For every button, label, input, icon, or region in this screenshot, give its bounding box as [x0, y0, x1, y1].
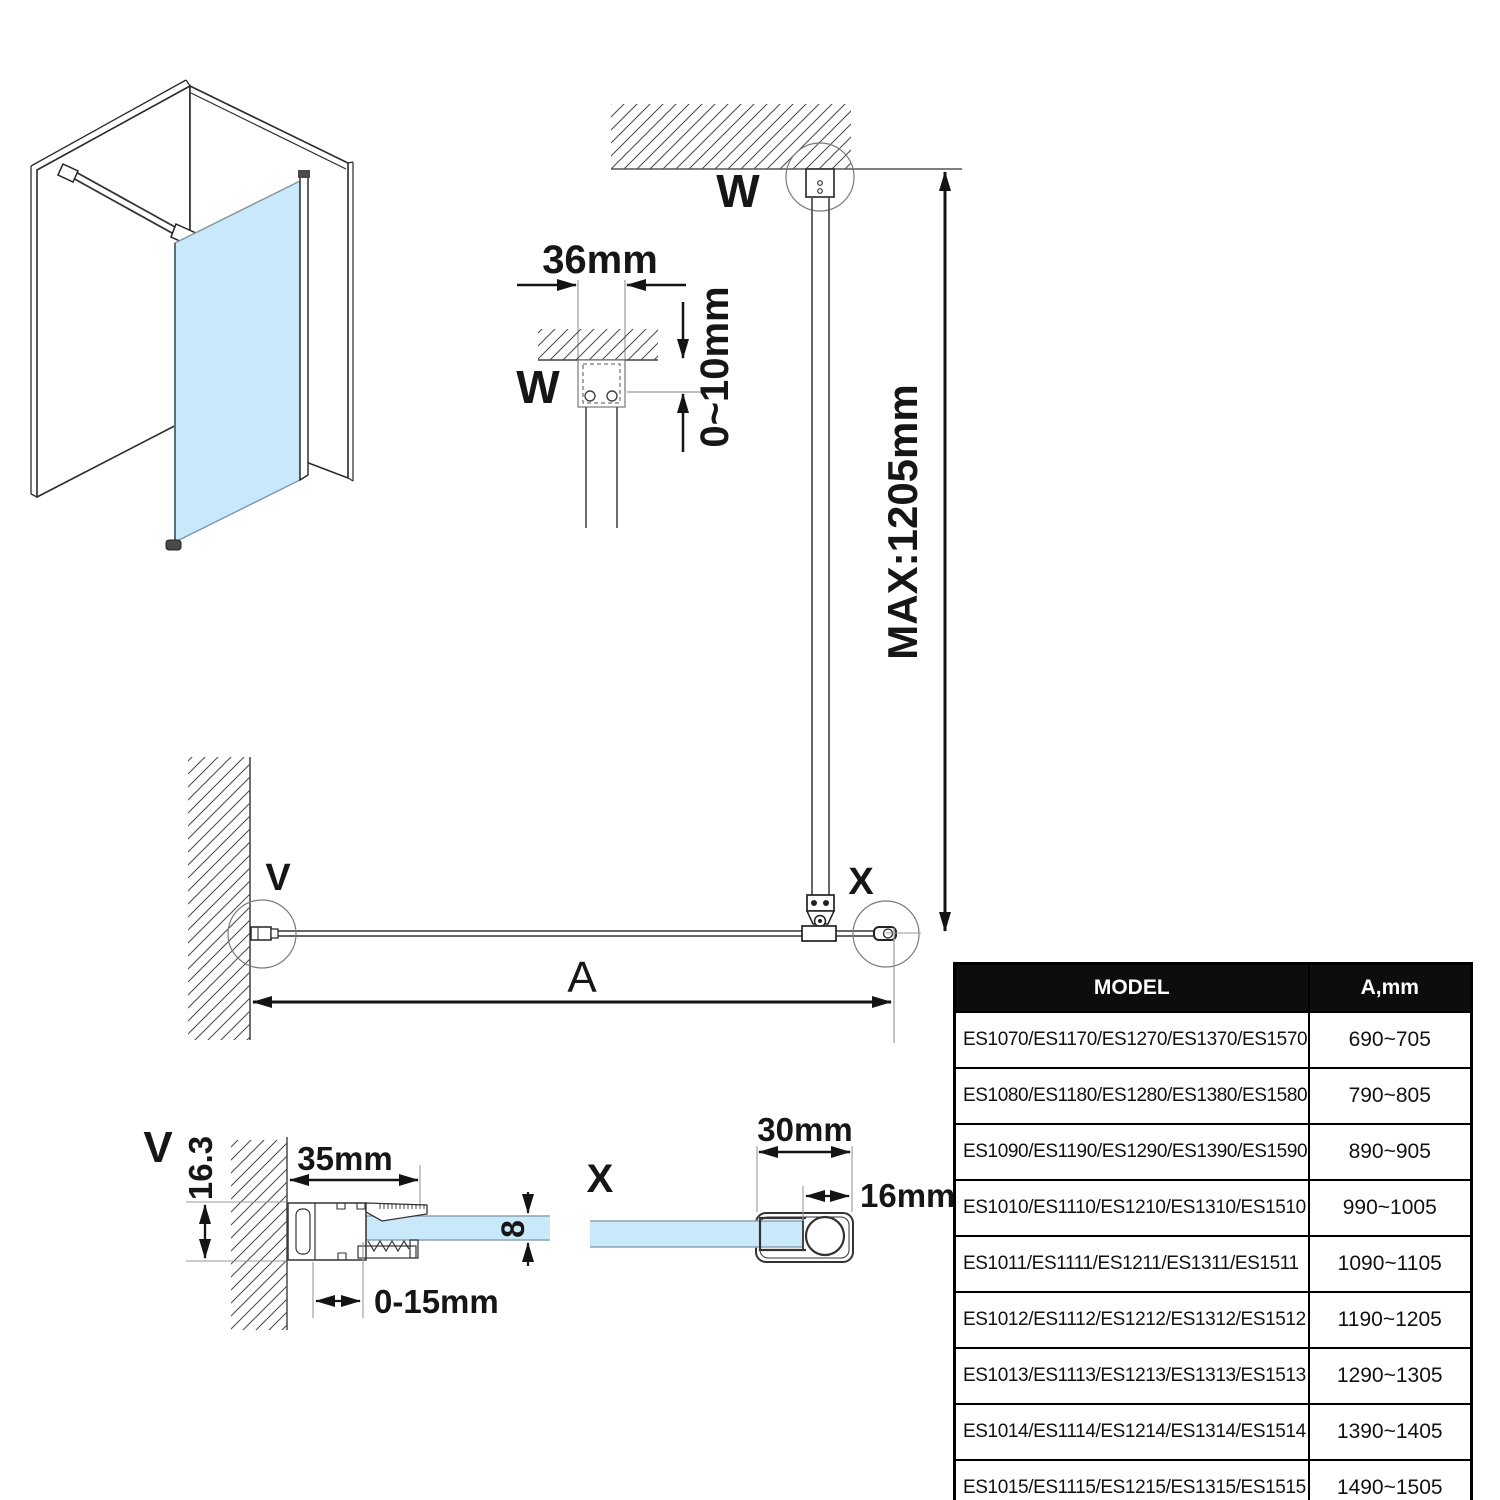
a-column-header: A,mm — [1309, 964, 1472, 1013]
bracket-screw — [607, 391, 617, 401]
technical-drawing-page: 36mm W 0~10mm W MAX:1205mm — [0, 0, 1500, 1500]
pole-glass-clamp — [807, 895, 834, 927]
table-row: ES1090/ES1190/ES1290/ES1390/ES1590890~90… — [955, 1124, 1472, 1180]
model-cell: ES1014/ES1114/ES1214/ES1314/ES1514 — [955, 1404, 1309, 1460]
table-row: ES1070/ES1170/ES1270/ES1370/ES1570690~70… — [955, 1012, 1472, 1068]
model-cell: ES1080/ES1180/ES1280/ES1380/ES1580 — [955, 1068, 1309, 1124]
profile-top-cap — [298, 170, 310, 178]
profile-tube-hole — [806, 1217, 844, 1255]
x-marker-label: X — [848, 861, 874, 903]
a-value-cell: 1090~1105 — [1309, 1236, 1472, 1292]
ceiling-bracket — [578, 360, 625, 407]
model-cell: ES1013/ES1113/ES1213/ES1313/ES1513 — [955, 1348, 1309, 1404]
wall-hatch-detail — [231, 1140, 287, 1330]
dim-16mm: 16mm — [860, 1177, 955, 1214]
model-cell: ES1010/ES1110/ES1210/ES1310/ES1510 — [955, 1180, 1309, 1236]
dim-8: 8 — [495, 1220, 531, 1238]
v-marker-label: V — [265, 857, 291, 899]
model-cell: ES1011/ES1111/ES1211/ES1311/ES1511 — [955, 1236, 1309, 1292]
dim-a-label: A — [567, 953, 597, 1002]
ceiling-hatch-detail — [538, 329, 658, 360]
detail-v: V 16.3 35mm — [143, 1123, 550, 1330]
model-cell: ES1070/ES1170/ES1270/ES1370/ES1570 — [955, 1012, 1309, 1068]
a-value-cell: 1390~1405 — [1309, 1404, 1472, 1460]
a-value-cell: 690~705 — [1309, 1012, 1472, 1068]
a-value-cell: 790~805 — [1309, 1068, 1472, 1124]
model-cell: ES1012/ES1112/ES1212/ES1312/ES1512 — [955, 1292, 1309, 1348]
model-table-body: ES1070/ES1170/ES1270/ES1370/ES1570690~70… — [955, 1012, 1472, 1500]
table-row: ES1080/ES1180/ES1280/ES1380/ES1580790~80… — [955, 1068, 1472, 1124]
glass-bottom-foot — [166, 540, 181, 550]
wall-hatch — [188, 757, 250, 1040]
isometric-view — [31, 80, 353, 550]
dim-max-1205mm: MAX:1205mm — [879, 384, 926, 659]
detail-w: 36mm W 0~10mm — [516, 238, 737, 528]
model-cell: ES1090/ES1190/ES1290/ES1390/ES1590 — [955, 1124, 1309, 1180]
table-row: ES1013/ES1113/ES1213/ES1313/ES15131290~1… — [955, 1348, 1472, 1404]
detail-x: X 30mm 16mm — [587, 1111, 956, 1262]
table-row: ES1015/ES1115/ES1215/ES1315/ES15151490~1… — [955, 1460, 1472, 1500]
a-value-cell: 890~905 — [1309, 1124, 1472, 1180]
clamp-block — [802, 926, 836, 941]
elevation-view: W MAX:1205mm — [611, 104, 962, 931]
left-wall — [37, 86, 190, 497]
wall-profile-iso — [300, 173, 308, 480]
glass-panel — [175, 181, 300, 542]
a-value-cell: 1290~1305 — [1309, 1348, 1472, 1404]
ceiling-hatch — [611, 104, 851, 169]
dim-30mm: 30mm — [757, 1111, 852, 1148]
dim-36mm: 36mm — [542, 238, 658, 282]
table-row: ES1011/ES1111/ES1211/ES1311/ES15111090~1… — [955, 1236, 1472, 1292]
a-value-cell: 990~1005 — [1309, 1180, 1472, 1236]
model-size-table: MODEL A,mm ES1070/ES1170/ES1270/ES1370/E… — [953, 962, 1473, 1500]
a-value-cell: 1490~1505 — [1309, 1460, 1472, 1500]
model-column-header: MODEL — [955, 964, 1309, 1013]
dim-0-10mm: 0~10mm — [693, 286, 737, 447]
dim-35mm: 35mm — [297, 1140, 392, 1177]
table-row: ES1012/ES1112/ES1212/ES1312/ES15121190~1… — [955, 1292, 1472, 1348]
wall-profile-plan — [251, 927, 271, 940]
w-marker-label: W — [716, 165, 760, 217]
a-value-cell: 1190~1205 — [1309, 1292, 1472, 1348]
detail-w-label: W — [516, 361, 560, 413]
model-cell: ES1015/ES1115/ES1215/ES1315/ES1515 — [955, 1460, 1309, 1500]
bracket-screw — [585, 391, 595, 401]
dim-16-3: 16.3 — [182, 1136, 219, 1200]
glass-section-x — [590, 1221, 803, 1247]
detail-x-label: X — [587, 1157, 614, 1201]
detail-v-label: V — [143, 1123, 173, 1172]
table-header-row: MODEL A,mm — [955, 964, 1472, 1013]
table-row: ES1010/ES1110/ES1210/ES1310/ES1510990~10… — [955, 1180, 1472, 1236]
table-row: ES1014/ES1114/ES1214/ES1314/ES15141390~1… — [955, 1404, 1472, 1460]
dim-0-15mm: 0-15mm — [374, 1283, 499, 1320]
